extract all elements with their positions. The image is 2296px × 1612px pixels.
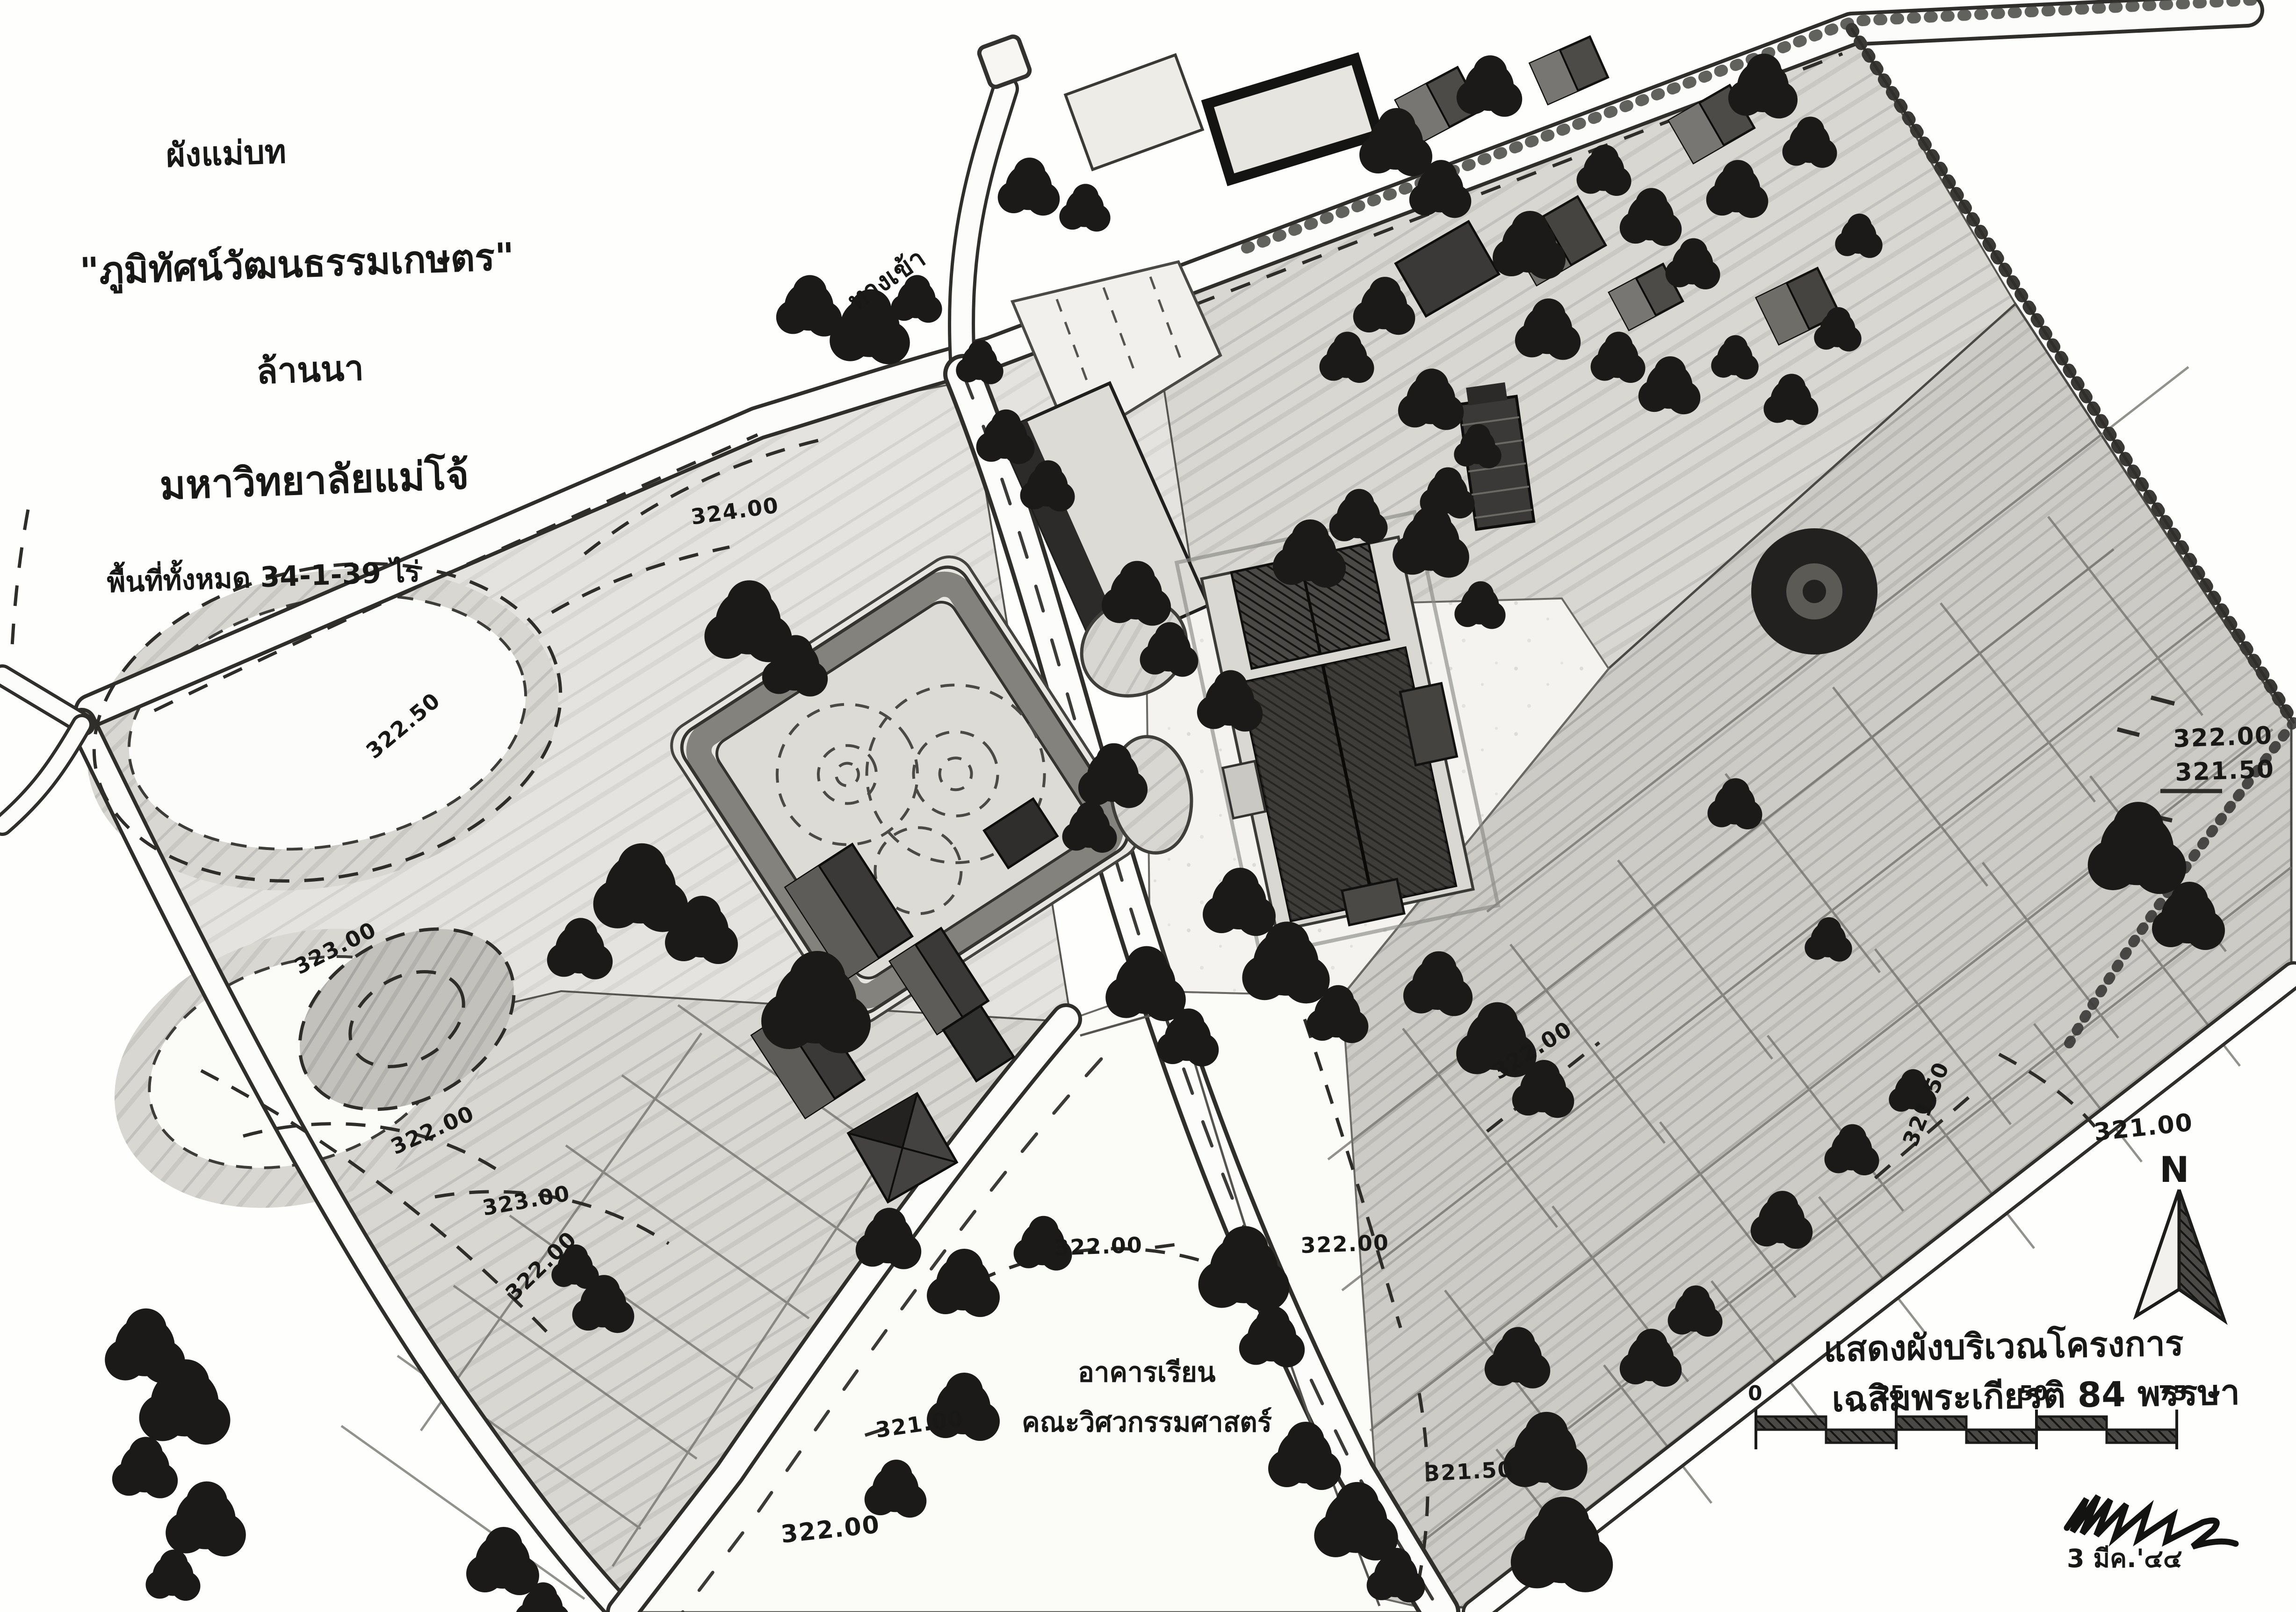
scale-tick-50: 50 — [2019, 1382, 2048, 1405]
building-label-line-1: อาคารเรียน — [1078, 1356, 1216, 1388]
title-line-3: ล้านนา — [256, 348, 364, 392]
contour-label: 322.00 — [1054, 1232, 1143, 1260]
north-label: N — [2159, 1149, 2189, 1190]
scanned-site-plan: ผังแม่บท "ภูมิทัศน์วัฒนธรรมเกษตร" ล้านนา… — [0, 0, 2296, 1612]
big-ring-tree — [1751, 528, 1877, 655]
site-plan-canvas: ผังแม่บท "ภูมิทัศน์วัฒนธรรมเกษตร" ล้านนา… — [0, 0, 2296, 1612]
title-line-1: ผังแม่บท — [166, 132, 287, 175]
date-note: 3 มีค.'๔๔ — [2067, 1544, 2182, 1573]
building-label-line-2: คณะวิศวกรรมศาสตร์ — [1022, 1406, 1272, 1438]
contour-label: 321.50 — [2174, 756, 2275, 787]
contour-label: 322.00 — [1300, 1230, 1389, 1258]
scale-tick-75: 75 — [2159, 1382, 2187, 1405]
contour-label: 322.00 — [2173, 722, 2273, 753]
scale-tick-0: 0 — [1748, 1382, 1762, 1405]
contour-label: 321.50 — [1424, 1456, 1514, 1486]
scale-tick-25: 25 — [1876, 1382, 1905, 1405]
caption-line-1: แสดงผังบริเวณโครงการ — [1823, 1323, 2184, 1370]
